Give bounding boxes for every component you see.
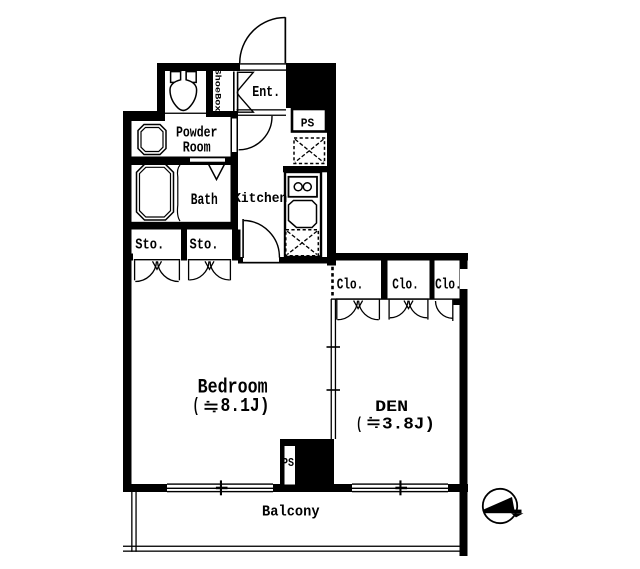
svg-text:Bath: Bath (191, 191, 218, 209)
svg-text:(: ( (193, 395, 200, 417)
svg-text:DEN: DEN (375, 398, 408, 416)
svg-text:3.8J): 3.8J) (382, 416, 435, 435)
svg-text:ShoeBox: ShoeBox (213, 69, 222, 112)
svg-text:Ent.: Ent. (252, 84, 280, 101)
svg-text:Room: Room (183, 140, 211, 157)
svg-text:Sto.: Sto. (190, 237, 219, 254)
svg-text:Kitchen: Kitchen (233, 191, 287, 207)
svg-text:Clo.: Clo. (337, 277, 364, 294)
svg-text:PS: PS (301, 117, 315, 131)
svg-text:(: ( (356, 416, 363, 435)
svg-text:Sto.: Sto. (135, 237, 164, 254)
svg-text:8.1J): 8.1J) (221, 395, 270, 417)
svg-text:PS: PS (282, 457, 294, 470)
svg-text:Clo.: Clo. (435, 277, 462, 294)
svg-text:Clo.: Clo. (392, 277, 419, 294)
svg-text:Balcony: Balcony (262, 503, 320, 520)
